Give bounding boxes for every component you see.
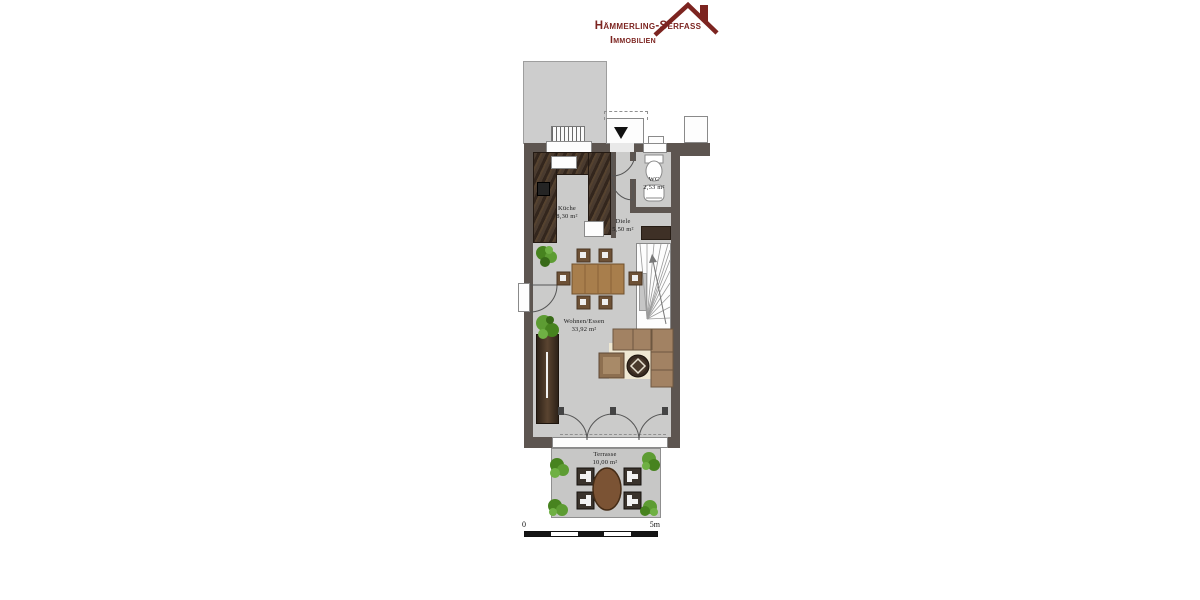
entrance-arrow-icon bbox=[614, 127, 628, 139]
logo-line2: Immobilien bbox=[573, 34, 693, 46]
coffee-table bbox=[627, 355, 649, 377]
room-label-wc: WC 2,53 m² bbox=[636, 176, 672, 191]
room-label-wohnen-essen: Wohnen/Essen 33,92 m² bbox=[552, 318, 616, 333]
room-area: 33,92 m² bbox=[552, 326, 616, 334]
bush-icon bbox=[642, 452, 660, 471]
room-label-terrasse: Terrasse 10,00 m² bbox=[573, 451, 637, 466]
vector-overlay bbox=[0, 0, 1200, 600]
bush-icon bbox=[548, 499, 568, 516]
wc-door bbox=[612, 179, 633, 200]
bush-icon bbox=[550, 458, 569, 478]
dining-table bbox=[572, 264, 624, 294]
room-name: Terrasse bbox=[573, 451, 637, 459]
room-label-kueche: Küche 8,30 m² bbox=[545, 205, 589, 220]
room-name: WC bbox=[636, 176, 672, 184]
terrace-french-doors bbox=[561, 414, 665, 440]
terrace-table bbox=[593, 468, 621, 510]
room-area: 5,50 m² bbox=[601, 226, 645, 234]
bush-icon bbox=[640, 500, 658, 516]
room-area: 2,53 m² bbox=[636, 184, 672, 192]
room-area: 8,30 m² bbox=[545, 213, 589, 221]
side-door bbox=[530, 285, 557, 312]
staircase-treads bbox=[640, 244, 670, 319]
scale-end-label: 5m bbox=[638, 520, 660, 529]
terrace-door-posts bbox=[558, 407, 668, 415]
plant-icon bbox=[536, 246, 557, 267]
armchair bbox=[599, 353, 624, 378]
room-label-diele: Diele 5,50 m² bbox=[601, 218, 645, 233]
room-name: Küche bbox=[545, 205, 589, 213]
scale-start-label: 0 bbox=[522, 520, 526, 529]
room-area: 10,00 m² bbox=[573, 459, 637, 467]
room-name: Diele bbox=[601, 218, 645, 226]
room-name: Wohnen/Essen bbox=[552, 318, 616, 326]
logo-line1: Hämmerling-Serfass bbox=[573, 20, 723, 32]
entrance-door bbox=[612, 153, 635, 176]
